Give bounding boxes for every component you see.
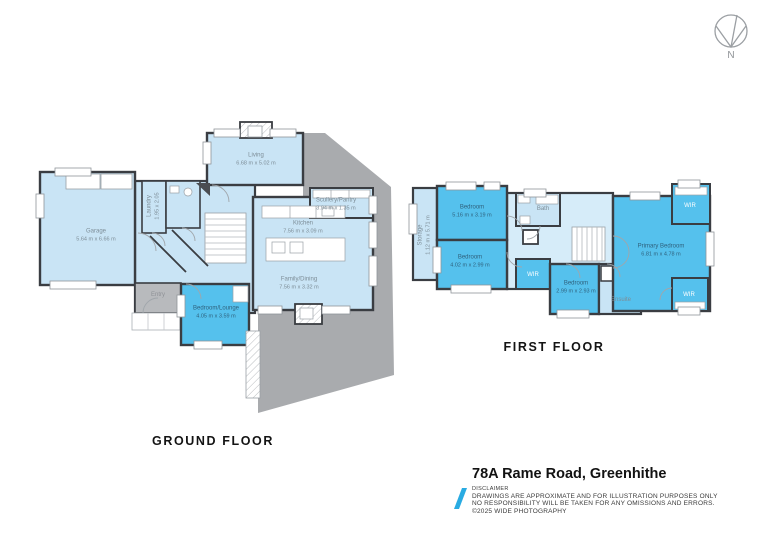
bedroom-lounge-closet xyxy=(233,286,248,302)
compass-icon xyxy=(715,15,747,47)
plan-graphics xyxy=(0,0,768,537)
garage-closet xyxy=(101,174,132,189)
kitchen-bench xyxy=(262,206,345,218)
property-address: 78A Rame Road, Greenhithe xyxy=(472,466,752,482)
floorplan-page: Living 6.68 m x 5.02 m Garage 5.64 m x 6… xyxy=(0,0,768,537)
disclaimer-text: DISCLAIMER DRAWINGS ARE APPROXIMATE AND … xyxy=(472,486,718,515)
family-fireplace xyxy=(295,304,322,324)
bedroom1-shape xyxy=(437,186,507,240)
footer-block: 78A Rame Road, Greenhithe DISCLAIMER DRA… xyxy=(452,466,752,515)
bedroom2-shape xyxy=(437,240,507,289)
disclaimer-line: ©2025 WIDE PHOTOGRAPHY xyxy=(472,508,718,515)
ground-floor-title: GROUND FLOOR xyxy=(152,434,274,448)
disclaimer-line: DRAWINGS ARE APPROXIMATE AND FOR ILLUSTR… xyxy=(472,493,718,500)
scullery-bench xyxy=(313,190,370,198)
first-stairs xyxy=(572,227,605,261)
fireplace-chimney xyxy=(240,122,272,138)
ground-floor-plan xyxy=(36,122,394,413)
first-floor-title: FIRST FLOOR xyxy=(504,340,605,354)
ground-stairs xyxy=(205,213,246,263)
entry-porch-steps xyxy=(132,313,180,330)
kitchen-island xyxy=(266,238,345,261)
deck-stairs xyxy=(246,331,260,398)
shower-shape xyxy=(523,230,538,244)
disclaimer-row: DISCLAIMER DRAWINGS ARE APPROXIMATE AND … xyxy=(452,486,752,515)
living-shape xyxy=(207,133,303,185)
disclaimer-title: DISCLAIMER xyxy=(472,486,718,492)
disclaimer-line: NO RESPONSIBILITY WILL BE TAKEN FOR ANY … xyxy=(472,500,718,507)
brand-slash-icon xyxy=(452,486,469,510)
bedroom3-shape xyxy=(550,264,599,314)
first-floor-plan xyxy=(409,180,714,318)
compass-north-label: N xyxy=(727,50,734,61)
wir-hall-shape xyxy=(516,259,550,289)
laundry-shape xyxy=(142,181,166,233)
